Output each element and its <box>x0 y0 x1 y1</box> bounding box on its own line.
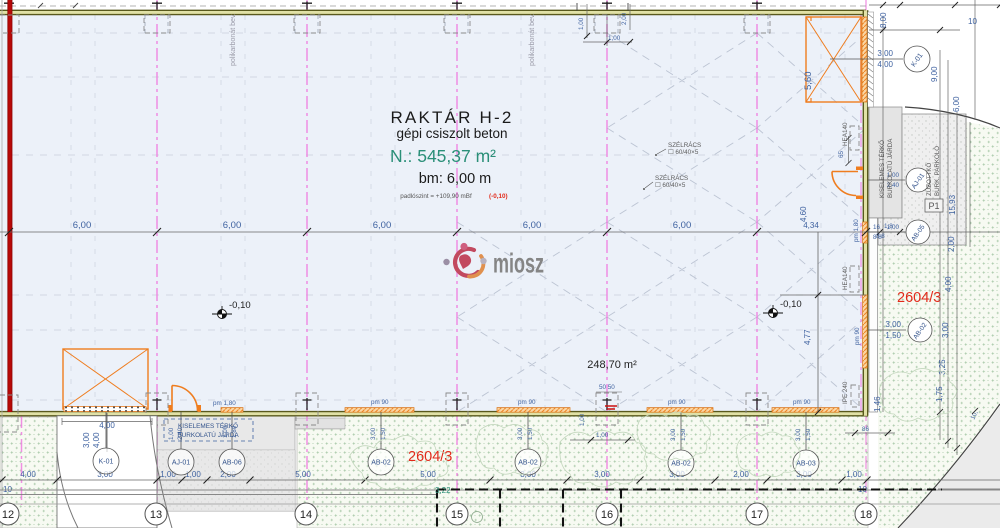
svg-text:3,00: 3,00 <box>517 427 524 440</box>
svg-text:ZÚZOTTKŐ: ZÚZOTTKŐ <box>926 162 933 196</box>
svg-text:HEA140: HEA140 <box>842 266 849 290</box>
svg-text:2604/3: 2604/3 <box>897 290 941 306</box>
svg-text:IPE 240: IPE 240 <box>842 381 849 404</box>
svg-text:padlószint = +109,90 mBf: padlószint = +109,90 mBf <box>400 193 472 200</box>
svg-text:8,00: 8,00 <box>879 12 888 28</box>
svg-text:4,00: 4,00 <box>92 432 101 448</box>
svg-text:1,50: 1,50 <box>380 427 387 440</box>
svg-text:gépi csiszolt beton: gépi csiszolt beton <box>396 126 507 141</box>
svg-text:-0,10: -0,10 <box>780 299 802 310</box>
svg-text:15,93: 15,93 <box>948 194 957 215</box>
svg-text:5,00: 5,00 <box>295 470 311 479</box>
svg-text:6,00: 6,00 <box>373 220 392 231</box>
svg-text:4,60: 4,60 <box>799 206 808 222</box>
svg-text:AB-02: AB-02 <box>671 461 691 468</box>
svg-text:polikarbonát bev.: polikarbonát bev. <box>529 13 536 66</box>
svg-text:BURKOLATÚ JÁRDA: BURKOLATÚ JÁRDA <box>887 138 894 198</box>
svg-text:pm 90: pm 90 <box>371 399 389 406</box>
svg-text:6,00: 6,00 <box>673 220 692 231</box>
svg-text:3,00: 3,00 <box>670 428 677 441</box>
svg-text:3,00: 3,00 <box>370 427 377 440</box>
svg-text:1,00: 1,00 <box>608 35 621 42</box>
svg-text:pm 90: pm 90 <box>854 327 861 345</box>
svg-text:1,00: 1,00 <box>578 17 585 30</box>
svg-text:3,22: 3,22 <box>435 486 451 495</box>
svg-text:2,00: 2,00 <box>621 12 628 25</box>
svg-text:1,00: 1,00 <box>846 470 862 479</box>
svg-text:15: 15 <box>451 509 463 521</box>
svg-text:SZÉLRÁCS: SZÉLRÁCS <box>655 173 688 182</box>
svg-text:AB-03: AB-03 <box>796 461 816 468</box>
svg-text:3,00: 3,00 <box>941 322 950 338</box>
svg-text:3,00: 3,00 <box>82 432 91 448</box>
svg-text:1,50: 1,50 <box>527 427 534 440</box>
svg-text:pm 90: pm 90 <box>793 399 811 406</box>
svg-text:6,00: 6,00 <box>73 220 92 231</box>
svg-text:1,00: 1,00 <box>168 427 175 440</box>
svg-text:86: 86 <box>862 426 870 433</box>
svg-text:1,00: 1,00 <box>596 432 609 439</box>
svg-text:16: 16 <box>601 509 613 521</box>
svg-text:6,00: 6,00 <box>952 96 961 112</box>
svg-text:bm: 6,00 m: bm: 6,00 m <box>419 171 492 187</box>
svg-text:6,00: 6,00 <box>223 220 242 231</box>
svg-text:14: 14 <box>300 509 312 521</box>
svg-text:1,46: 1,46 <box>873 396 882 412</box>
svg-text:248,70 m²: 248,70 m² <box>587 359 637 371</box>
svg-text:8 8: 8 8 <box>876 233 885 240</box>
svg-text:3,00: 3,00 <box>594 470 610 479</box>
svg-text:6,00: 6,00 <box>523 220 542 231</box>
svg-text:1,50: 1,50 <box>680 428 687 441</box>
svg-text:4,00: 4,00 <box>20 470 36 479</box>
svg-text:3,00: 3,00 <box>795 428 802 441</box>
svg-text:17: 17 <box>751 509 763 521</box>
svg-text:2,00: 2,00 <box>733 470 749 479</box>
svg-text:-0,10: -0,10 <box>229 300 251 311</box>
svg-text:pm 90: pm 90 <box>668 399 686 406</box>
svg-text:4,00: 4,00 <box>99 421 115 430</box>
svg-text:3,00: 3,00 <box>885 320 901 329</box>
svg-text:N.: 545,37 m²: N.: 545,37 m² <box>390 146 496 166</box>
svg-text:miosz: miosz <box>493 248 544 279</box>
svg-text:3,00: 3,00 <box>877 49 893 58</box>
svg-text:☐ 60/40×5: ☐ 60/40×5 <box>655 182 686 189</box>
svg-text:10: 10 <box>3 485 12 494</box>
svg-text:K-01: K-01 <box>99 459 114 466</box>
svg-text:18: 18 <box>860 509 872 521</box>
svg-text:pm 90: pm 90 <box>518 399 536 406</box>
svg-text:1,00: 1,00 <box>579 413 586 426</box>
svg-text:AB-02: AB-02 <box>371 460 391 467</box>
svg-text:1,00: 1,00 <box>887 224 900 231</box>
svg-text:pm 1,80: pm 1,80 <box>853 219 860 242</box>
svg-text:13: 13 <box>150 509 162 521</box>
svg-text:4,77: 4,77 <box>803 329 812 345</box>
svg-text:AB-06: AB-06 <box>222 460 242 467</box>
svg-text:1,50: 1,50 <box>805 428 812 441</box>
svg-text:(-0,10): (-0,10) <box>489 193 508 200</box>
svg-text:4,00: 4,00 <box>944 276 953 292</box>
svg-text:1,50: 1,50 <box>885 331 901 340</box>
svg-text:RAKTÁR H-2: RAKTÁR H-2 <box>390 108 513 127</box>
svg-text:pm 1,80: pm 1,80 <box>213 400 236 407</box>
svg-text:65: 65 <box>838 150 845 158</box>
svg-text:polikarbonát bev.: polikarbonát bev. <box>230 13 237 66</box>
svg-text:2604/3: 2604/3 <box>408 449 452 465</box>
svg-text:SZÉLRÁCS: SZÉLRÁCS <box>668 140 701 149</box>
svg-text:HEA140: HEA140 <box>842 122 849 146</box>
svg-text:P1: P1 <box>928 201 939 211</box>
svg-text:50 50: 50 50 <box>599 384 615 391</box>
svg-text:☐ 60/40×5: ☐ 60/40×5 <box>668 149 699 156</box>
svg-text:KISELEMES TÉRKŐ: KISELEMES TÉRKŐ <box>178 421 238 430</box>
svg-text:16: 16 <box>873 224 881 231</box>
svg-text:AJ-01: AJ-01 <box>172 460 190 467</box>
svg-text:AB-02: AB-02 <box>518 460 538 467</box>
svg-text:2,00: 2,00 <box>947 236 956 252</box>
svg-text:9,00: 9,00 <box>930 66 939 82</box>
svg-text:KISELEMES TÉRKŐ: KISELEMES TÉRKŐ <box>879 140 886 198</box>
svg-text:10: 10 <box>968 17 977 26</box>
svg-text:1,75: 1,75 <box>935 386 944 402</box>
svg-text:4,00: 4,00 <box>877 60 893 69</box>
svg-text:BURKOLATÚ JÁRDA: BURKOLATÚ JÁRDA <box>177 430 239 439</box>
svg-text:BURK. PARKOLÓ: BURK. PARKOLÓ <box>934 146 941 196</box>
svg-text:5,60: 5,60 <box>803 72 814 91</box>
svg-text:5,00: 5,00 <box>420 470 436 479</box>
svg-text:12: 12 <box>2 509 14 521</box>
